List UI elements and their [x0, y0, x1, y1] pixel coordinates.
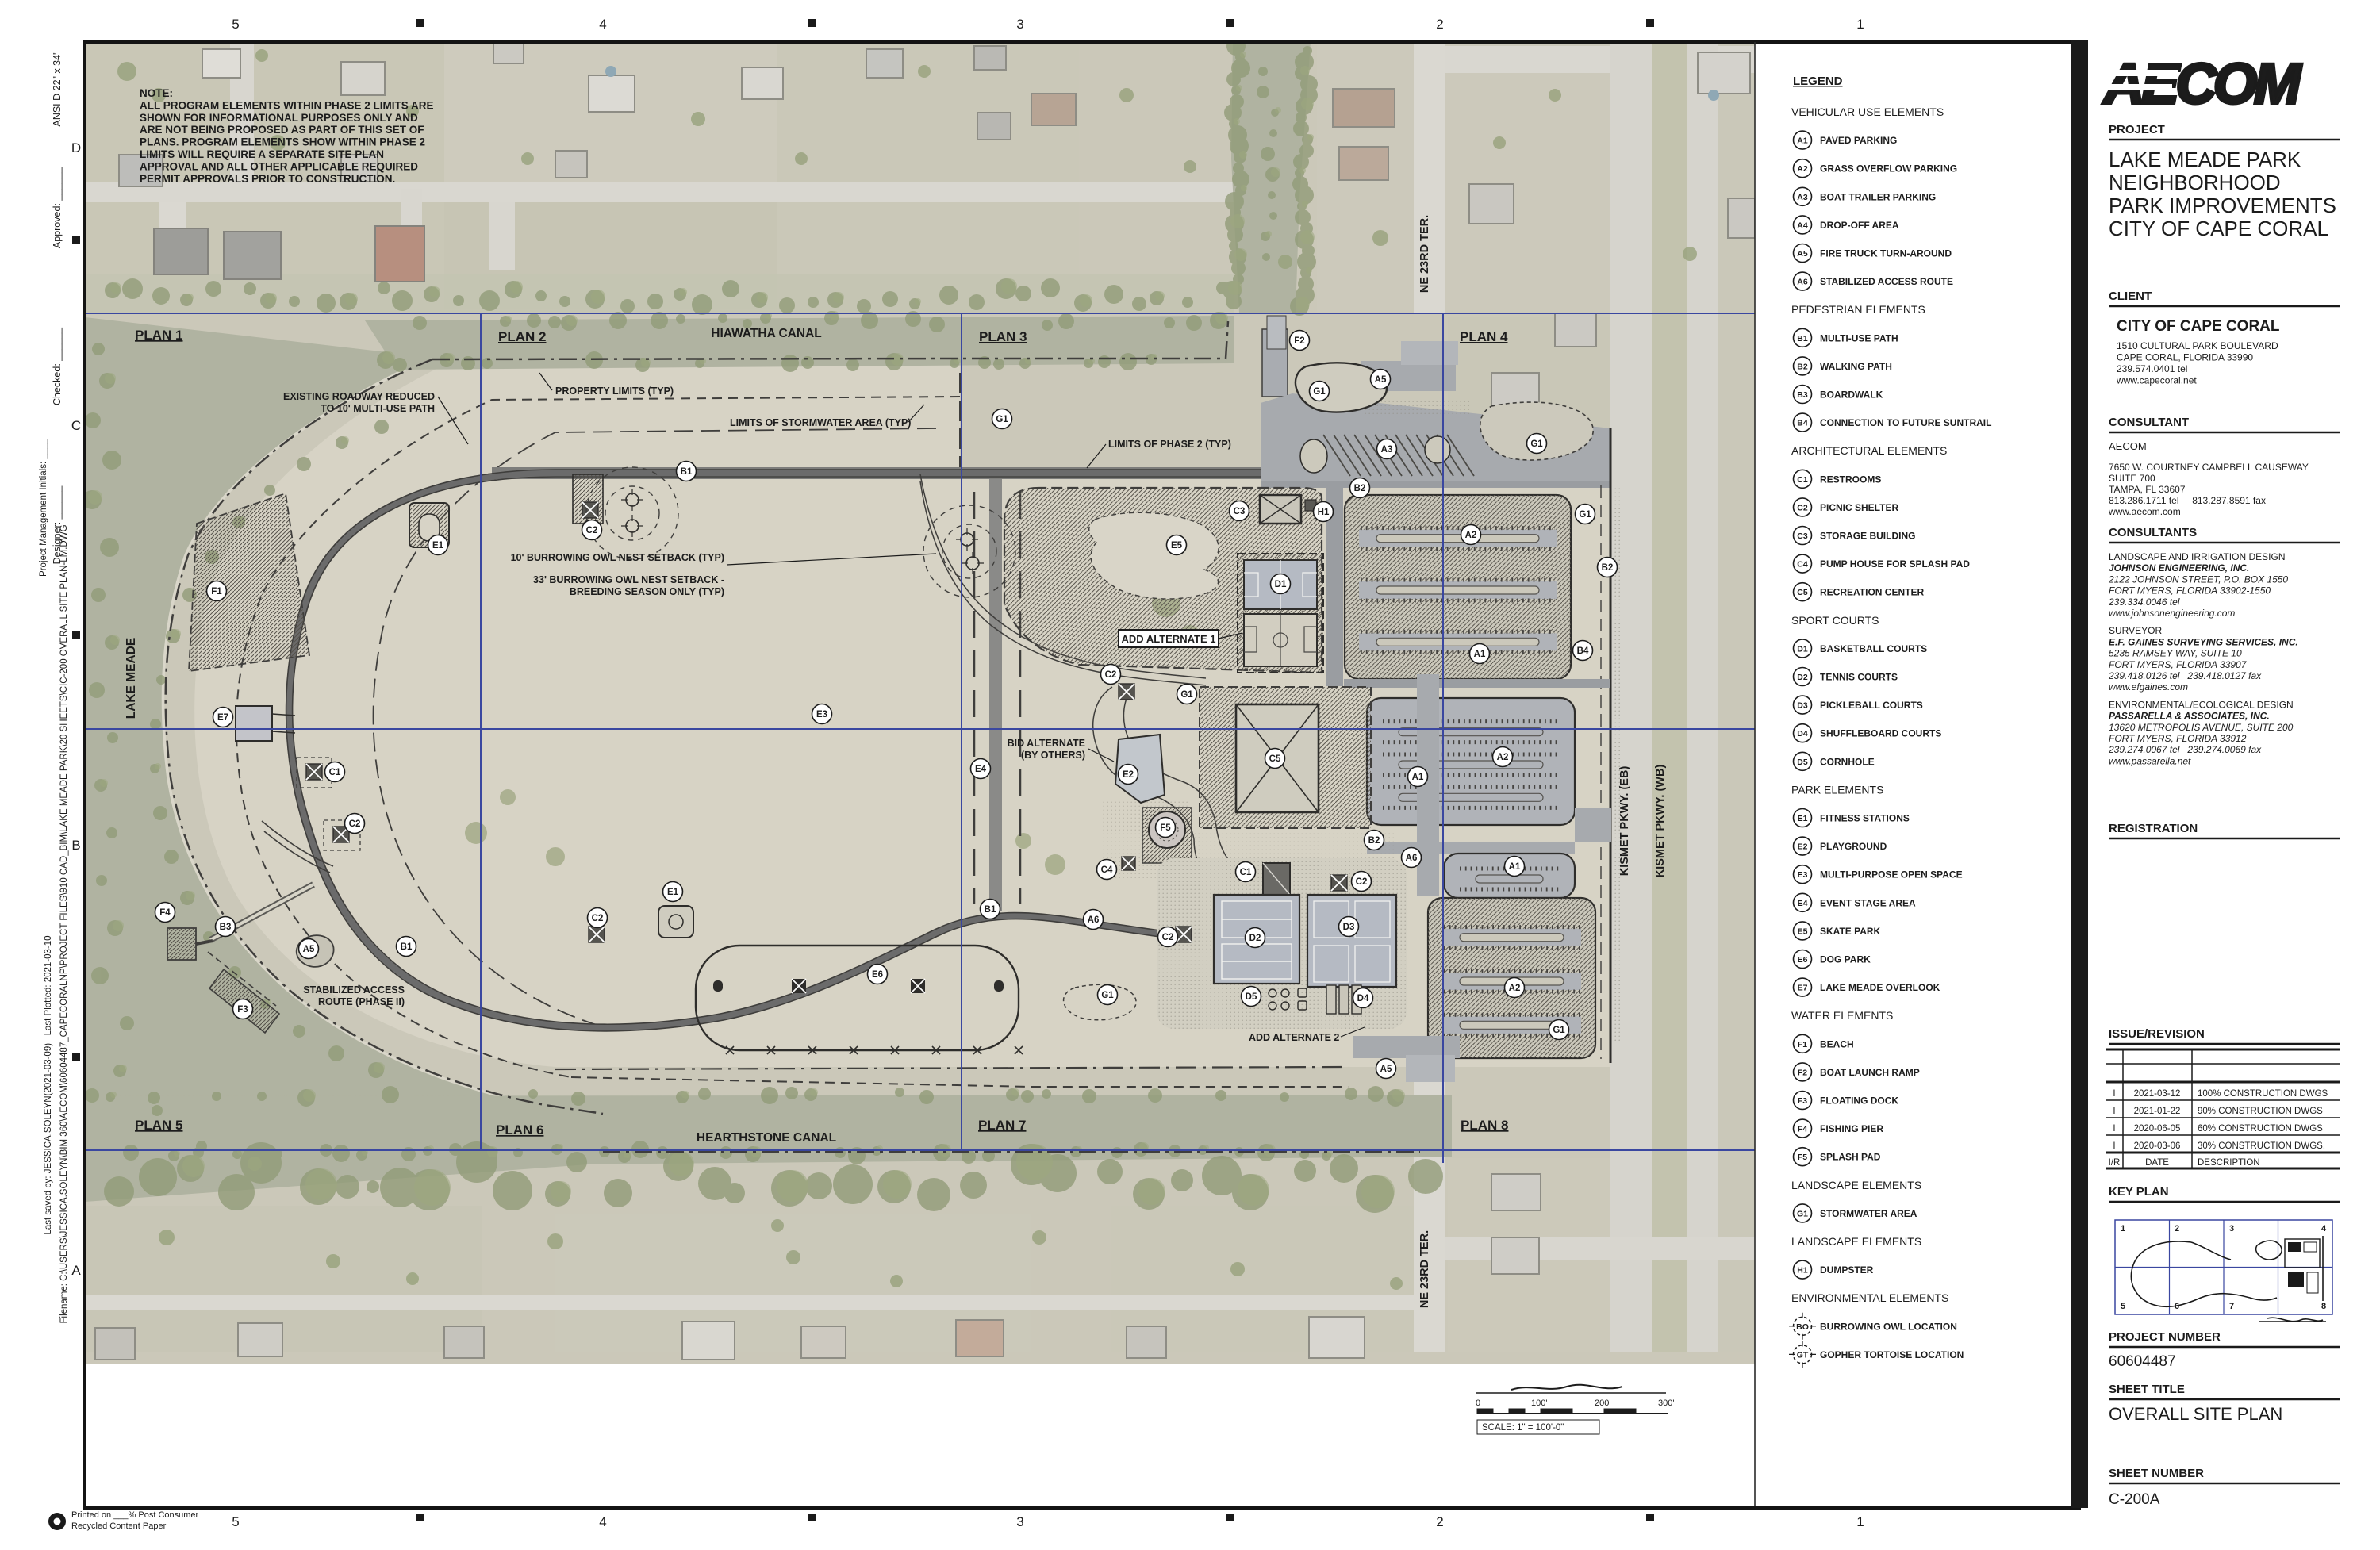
- svg-text:www.capecoral.net: www.capecoral.net: [2116, 375, 2197, 386]
- svg-text:E.F. GAINES SURVEYING SERVICES: E.F. GAINES SURVEYING SERVICES, INC.: [2109, 636, 2298, 647]
- svg-text:PROJECT NUMBER: PROJECT NUMBER: [2109, 1330, 2221, 1344]
- svg-text:100': 100': [1531, 1398, 1547, 1408]
- svg-text:Filename: C:\USERS\JESSICA.SOL: Filename: C:\USERS\JESSICA.SOLEYN\BIM 36…: [59, 524, 69, 1323]
- svg-text:SHEET NUMBER: SHEET NUMBER: [2109, 1467, 2204, 1480]
- svg-text:www.passarella.net: www.passarella.net: [2109, 755, 2191, 766]
- svg-text:CONNECTION TO FUTURE SUNTRAIL: CONNECTION TO FUTURE SUNTRAIL: [1820, 417, 1991, 428]
- svg-text:200': 200': [1595, 1398, 1610, 1408]
- svg-text:G1: G1: [1101, 991, 1114, 1000]
- svg-text:BASKETBALL COURTS: BASKETBALL COURTS: [1820, 643, 1927, 654]
- svg-text:2: 2: [2175, 1224, 2179, 1233]
- svg-text:5: 5: [232, 17, 239, 32]
- svg-text:GRASS OVERFLOW PARKING: GRASS OVERFLOW PARKING: [1820, 163, 1957, 175]
- svg-text:LIMITS OF STORMWATER AREA (TYP: LIMITS OF STORMWATER AREA (TYP): [730, 417, 911, 428]
- svg-text:E5: E5: [1171, 541, 1183, 551]
- svg-text:E7: E7: [1798, 984, 1808, 993]
- svg-text:F5: F5: [1798, 1153, 1807, 1162]
- svg-text:60% CONSTRUCTION DWGS: 60% CONSTRUCTION DWGS: [2198, 1124, 2323, 1134]
- svg-text:GOPHER TORTOISE LOCATION: GOPHER TORTOISE LOCATION: [1820, 1349, 1963, 1360]
- svg-text:A6: A6: [1406, 854, 1418, 863]
- svg-text:300': 300': [1658, 1398, 1674, 1408]
- svg-text:I/R: I/R: [2109, 1158, 2121, 1168]
- svg-text:3: 3: [2229, 1224, 2234, 1233]
- svg-text:I: I: [2113, 1141, 2115, 1151]
- svg-text:D4: D4: [1357, 994, 1369, 1003]
- svg-text:C4: C4: [1101, 865, 1113, 875]
- svg-text:1: 1: [1856, 17, 1864, 32]
- svg-text:C2: C2: [586, 526, 598, 535]
- svg-text:BID ALTERNATE: BID ALTERNATE: [1008, 738, 1085, 749]
- svg-text:2122 JOHNSON STREET, P.O. BOX: 2122 JOHNSON STREET, P.O. BOX 1550: [2108, 574, 2288, 585]
- svg-text:SCALE: 1" = 100'-0": SCALE: 1" = 100'-0": [1482, 1423, 1564, 1433]
- svg-text:CITY OF CAPE CORAL: CITY OF CAPE CORAL: [2109, 217, 2328, 240]
- svg-text:AECOM: AECOM: [2109, 440, 2147, 452]
- svg-text:3: 3: [1016, 17, 1023, 32]
- svg-text:EXISTING ROADWAY REDUCED: EXISTING ROADWAY REDUCED: [283, 391, 435, 402]
- svg-text:LAKE MEADE PARK: LAKE MEADE PARK: [2109, 148, 2301, 171]
- svg-text:TAMPA, FL 33607: TAMPA, FL 33607: [2109, 484, 2186, 495]
- svg-text:13620 METROPOLIS AVENUE, SUITE: 13620 METROPOLIS AVENUE, SUITE 200: [2109, 722, 2294, 733]
- svg-text:B2: B2: [1797, 362, 1808, 371]
- svg-text:APPROVAL AND ALL OTHER APPLICA: APPROVAL AND ALL OTHER APPLICABLE REQUIR…: [140, 160, 418, 172]
- svg-text:B1: B1: [681, 467, 693, 477]
- svg-text:2021-01-22: 2021-01-22: [2134, 1107, 2181, 1116]
- svg-text:PAVED PARKING: PAVED PARKING: [1820, 135, 1897, 146]
- svg-text:LIMITS WILL REQUIRE A SEPARATE: LIMITS WILL REQUIRE A SEPARATE SITE PLAN: [140, 148, 384, 160]
- svg-text:A6: A6: [1797, 278, 1808, 287]
- svg-text:F1: F1: [1798, 1040, 1807, 1049]
- svg-text:ENVIRONMENTAL/ECOLOGICAL DESIG: ENVIRONMENTAL/ECOLOGICAL DESIGN: [2109, 699, 2294, 710]
- svg-text:A2: A2: [1497, 753, 1509, 762]
- svg-text:D2: D2: [1249, 934, 1261, 943]
- svg-text:A1: A1: [1797, 136, 1808, 146]
- svg-text:10' BURROWING OWL NEST SETBACK: 10' BURROWING OWL NEST SETBACK (TYP): [511, 552, 724, 563]
- svg-text:A3: A3: [1381, 445, 1393, 455]
- svg-text:LAKE MEADE: LAKE MEADE: [125, 638, 138, 719]
- svg-text:PICKLEBALL COURTS: PICKLEBALL COURTS: [1820, 700, 1923, 711]
- svg-text:LAKE MEADE OVERLOOK: LAKE MEADE OVERLOOK: [1820, 982, 1940, 993]
- svg-text:HIAWATHA CANAL: HIAWATHA CANAL: [711, 327, 822, 340]
- svg-text:BOAT LAUNCH RAMP: BOAT LAUNCH RAMP: [1820, 1067, 1920, 1078]
- svg-text:D3: D3: [1797, 701, 1808, 711]
- svg-text:I: I: [2113, 1124, 2115, 1134]
- svg-text:7650 W. COURTNEY CAMPBELL CAUS: 7650 W. COURTNEY CAMPBELL CAUSEWAY: [2109, 462, 2309, 473]
- svg-text:SHUFFLEBOARD COURTS: SHUFFLEBOARD COURTS: [1820, 728, 1941, 739]
- svg-text:30% CONSTRUCTION DWGS.: 30% CONSTRUCTION DWGS.: [2198, 1141, 2325, 1151]
- svg-text:BOAT TRAILER PARKING: BOAT TRAILER PARKING: [1820, 191, 1936, 202]
- svg-text:A4: A4: [1797, 221, 1808, 230]
- svg-text:PASSARELLA & ASSOCIATES, INC.: PASSARELLA & ASSOCIATES, INC.: [2109, 711, 2270, 722]
- svg-text:F5: F5: [1160, 823, 1171, 833]
- svg-text:B3: B3: [1797, 390, 1808, 400]
- svg-text:C-200A: C-200A: [2109, 1491, 2160, 1508]
- svg-text:ENVIRONMENTAL ELEMENTS: ENVIRONMENTAL ELEMENTS: [1791, 1291, 1948, 1304]
- svg-text:2: 2: [1436, 1514, 1443, 1529]
- svg-text:PROJECT: PROJECT: [2109, 123, 2165, 136]
- svg-text:C2: C2: [1162, 933, 1174, 942]
- svg-text:CLIENT: CLIENT: [2109, 290, 2152, 303]
- svg-text:B4: B4: [1797, 419, 1808, 428]
- svg-text:C2: C2: [1356, 877, 1368, 887]
- svg-text:NE 23RD TER.: NE 23RD TER.: [1418, 215, 1431, 293]
- svg-text:BOARDWALK: BOARDWALK: [1820, 389, 1883, 401]
- svg-text:E6: E6: [872, 970, 883, 980]
- svg-text:I: I: [2113, 1089, 2115, 1099]
- svg-text:B3: B3: [220, 923, 232, 932]
- svg-text:1: 1: [2121, 1224, 2125, 1233]
- svg-text:REGISTRATION: REGISTRATION: [2109, 822, 2198, 835]
- svg-text:B2: B2: [1602, 563, 1614, 573]
- svg-text:239.334.0046 tel: 239.334.0046 tel: [2108, 597, 2180, 608]
- svg-text:RESTROOMS: RESTROOMS: [1820, 474, 1881, 485]
- svg-text:239.274.0067 tel 239.274.006: 239.274.0067 tel 239.274.0069 fax: [2108, 744, 2262, 755]
- svg-text:www.aecom.com: www.aecom.com: [2108, 506, 2181, 517]
- svg-text:DESCRIPTION: DESCRIPTION: [2198, 1158, 2260, 1168]
- svg-text:5: 5: [2121, 1302, 2125, 1311]
- svg-text:A6: A6: [1088, 915, 1100, 925]
- svg-text:(BY OTHERS): (BY OTHERS): [1021, 750, 1085, 761]
- svg-text:E7: E7: [217, 713, 228, 723]
- svg-text:I: I: [2113, 1107, 2115, 1116]
- svg-text:STABILIZED ACCESS ROUTE: STABILIZED ACCESS ROUTE: [1820, 276, 1953, 287]
- svg-text:C5: C5: [1269, 754, 1281, 764]
- svg-text:STORMWATER AREA: STORMWATER AREA: [1820, 1208, 1917, 1219]
- svg-text:A: A: [71, 1263, 81, 1278]
- svg-text:H1: H1: [1318, 508, 1330, 517]
- svg-text:Printed on ___% Post Consumer: Printed on ___% Post Consumer: [71, 1510, 199, 1520]
- svg-text:G1: G1: [1797, 1209, 1808, 1218]
- svg-text:Checked: ______: Checked: ______: [52, 327, 63, 405]
- svg-text:PLAN 6: PLAN 6: [496, 1122, 543, 1138]
- svg-text:A5: A5: [303, 945, 315, 954]
- svg-text:RECREATION CENTER: RECREATION CENTER: [1820, 587, 1924, 598]
- svg-text:CORNHOLE: CORNHOLE: [1820, 756, 1875, 767]
- svg-text:NOTE:: NOTE:: [140, 87, 173, 99]
- svg-text:FISHING PIER: FISHING PIER: [1820, 1123, 1883, 1134]
- svg-text:FORT MYERS, FLORIDA 33902-1550: FORT MYERS, FLORIDA 33902-1550: [2109, 585, 2271, 597]
- svg-text:C2: C2: [1797, 503, 1808, 512]
- svg-text:MULTI-PURPOSE OPEN SPACE: MULTI-PURPOSE OPEN SPACE: [1820, 869, 1963, 881]
- svg-text:B2: B2: [1354, 484, 1366, 493]
- svg-text:A3: A3: [1797, 193, 1808, 202]
- svg-text:A5: A5: [1375, 375, 1387, 385]
- svg-text:C2: C2: [1105, 670, 1117, 680]
- svg-text:VEHICULAR USE ELEMENTS: VEHICULAR USE ELEMENTS: [1791, 106, 1944, 118]
- svg-text:F3: F3: [237, 1005, 248, 1015]
- svg-text:E6: E6: [1798, 955, 1808, 965]
- svg-text:PROPERTY LIMITS (TYP): PROPERTY LIMITS (TYP): [555, 386, 674, 397]
- svg-text:SURVEYOR: SURVEYOR: [2109, 625, 2162, 636]
- svg-text:C2: C2: [592, 914, 604, 923]
- svg-text:CONSULTANTS: CONSULTANTS: [2109, 526, 2197, 539]
- svg-text:C1: C1: [1797, 475, 1808, 485]
- svg-text:ISSUE/REVISION: ISSUE/REVISION: [2109, 1027, 2205, 1041]
- svg-text:D: D: [71, 140, 81, 155]
- svg-text:Project Management Initials: _: Project Management Initials: ____: [39, 438, 48, 576]
- svg-text:F1: F1: [211, 587, 222, 597]
- svg-text:TENNIS COURTS: TENNIS COURTS: [1820, 672, 1898, 683]
- svg-text:60604487: 60604487: [2109, 1353, 2176, 1370]
- svg-text:A1: A1: [1474, 650, 1486, 659]
- svg-text:FITNESS STATIONS: FITNESS STATIONS: [1820, 813, 1910, 824]
- svg-text:OVERALL SITE PLAN: OVERALL SITE PLAN: [2109, 1404, 2282, 1424]
- svg-text:G1: G1: [1553, 1026, 1565, 1035]
- svg-text:D2: D2: [1797, 673, 1808, 682]
- svg-text:BURROWING OWL LOCATION: BURROWING OWL LOCATION: [1820, 1321, 1957, 1332]
- svg-text:LANDSCAPE AND IRRIGATION DESIG: LANDSCAPE AND IRRIGATION DESIGN: [2109, 551, 2286, 562]
- svg-text:DROP-OFF AREA: DROP-OFF AREA: [1820, 220, 1899, 231]
- svg-text:SUITE 700: SUITE 700: [2109, 473, 2155, 484]
- svg-text:ADD ALTERNATE 2: ADD ALTERNATE 2: [1249, 1032, 1339, 1043]
- svg-text:D4: D4: [1797, 729, 1808, 739]
- svg-text:C2: C2: [349, 819, 361, 829]
- svg-text:G1: G1: [1579, 510, 1591, 520]
- svg-text:WATER ELEMENTS: WATER ELEMENTS: [1791, 1009, 1893, 1022]
- svg-text:PLAN 1: PLAN 1: [135, 328, 182, 343]
- svg-text:PLAYGROUND: PLAYGROUND: [1820, 841, 1887, 852]
- svg-text:PLAN 7: PLAN 7: [978, 1118, 1026, 1133]
- svg-text:CAPE CORAL, FLORIDA 33990: CAPE CORAL, FLORIDA 33990: [2117, 352, 2253, 363]
- svg-text:7: 7: [2229, 1302, 2234, 1311]
- svg-text:E4: E4: [975, 765, 987, 774]
- svg-text:4: 4: [2321, 1224, 2327, 1233]
- svg-text:PLAN 2: PLAN 2: [498, 329, 546, 344]
- svg-text:C3: C3: [1234, 507, 1246, 516]
- svg-text:Approved: ______: Approved: ______: [52, 167, 63, 248]
- svg-text:239.418.0126 tel 239.418.012: 239.418.0126 tel 239.418.0127 fax: [2108, 670, 2262, 681]
- svg-text:4: 4: [599, 1514, 606, 1529]
- svg-text:0: 0: [1476, 1398, 1480, 1408]
- svg-text:LEGEND: LEGEND: [1793, 75, 1843, 88]
- svg-text:KISMET PKWY. (WB): KISMET PKWY. (WB): [1654, 765, 1667, 878]
- svg-text:DUMPSTER: DUMPSTER: [1820, 1264, 1874, 1276]
- svg-text:FLOATING DOCK: FLOATING DOCK: [1820, 1095, 1898, 1107]
- svg-text:A1: A1: [1509, 862, 1521, 872]
- svg-text:FIRE TRUCK TURN-AROUND: FIRE TRUCK TURN-AROUND: [1820, 248, 1952, 259]
- svg-text:3: 3: [1016, 1514, 1023, 1529]
- svg-text:FORT MYERS, FLORIDA 33912: FORT MYERS, FLORIDA 33912: [2109, 733, 2247, 744]
- svg-text:PLAN 3: PLAN 3: [979, 329, 1027, 344]
- svg-text:B4: B4: [1577, 646, 1589, 656]
- svg-text:2: 2: [1436, 17, 1443, 32]
- svg-text:G1: G1: [996, 415, 1008, 424]
- svg-text:E3: E3: [816, 710, 827, 719]
- svg-text:ROUTE (PHASE II): ROUTE (PHASE II): [318, 996, 405, 1007]
- svg-text:BO: BO: [1796, 1322, 1809, 1332]
- svg-text:PLAN 4: PLAN 4: [1460, 329, 1508, 344]
- svg-text:Last saved by: JESSICA.SOLEYN(: Last saved by: JESSICA.SOLEYN(2021-03-09…: [44, 935, 53, 1234]
- svg-text:C: C: [71, 418, 81, 433]
- svg-text:A2: A2: [1465, 531, 1477, 540]
- svg-text:E4: E4: [1798, 899, 1808, 908]
- svg-text:DATE: DATE: [2145, 1158, 2169, 1168]
- svg-text:E1: E1: [667, 888, 679, 897]
- svg-text:EVENT STAGE AREA: EVENT STAGE AREA: [1820, 897, 1916, 908]
- svg-text:PLAN 5: PLAN 5: [135, 1118, 182, 1133]
- svg-text:Recycled Content Paper: Recycled Content Paper: [71, 1521, 167, 1531]
- svg-text:PICNIC SHELTER: PICNIC SHELTER: [1820, 502, 1898, 513]
- svg-text:E1: E1: [1798, 814, 1808, 823]
- svg-text:B2: B2: [1368, 836, 1380, 846]
- svg-text:B1: B1: [1797, 334, 1808, 343]
- svg-text:F2: F2: [1294, 336, 1304, 346]
- svg-text:B: B: [71, 838, 80, 853]
- svg-text:NE 23RD TER.: NE 23RD TER.: [1418, 1230, 1431, 1308]
- svg-text:F4: F4: [1798, 1125, 1807, 1134]
- svg-text:F2: F2: [1798, 1068, 1807, 1077]
- svg-text:2020-06-05: 2020-06-05: [2134, 1124, 2181, 1134]
- svg-text:NEIGHBORHOOD: NEIGHBORHOOD: [2109, 171, 2281, 194]
- svg-text:WALKING PATH: WALKING PATH: [1820, 361, 1892, 372]
- svg-text:E2: E2: [1123, 770, 1134, 780]
- svg-text:1: 1: [1856, 1514, 1864, 1529]
- svg-text:B1: B1: [985, 905, 996, 915]
- svg-text:4: 4: [599, 17, 606, 32]
- svg-text:SHEET TITLE: SHEET TITLE: [2109, 1383, 2185, 1396]
- svg-text:813.286.1711 tel 813.287.8: 813.286.1711 tel 813.287.8591 fax: [2109, 495, 2266, 506]
- svg-text:www.efgaines.com: www.efgaines.com: [2109, 681, 2188, 693]
- svg-text:100% CONSTRUCTION DWGS: 100% CONSTRUCTION DWGS: [2198, 1089, 2328, 1099]
- svg-text:A5: A5: [1380, 1065, 1392, 1074]
- svg-text:DOG PARK: DOG PARK: [1820, 954, 1871, 965]
- svg-text:KEY PLAN: KEY PLAN: [2109, 1185, 2169, 1199]
- svg-text:A1: A1: [1412, 773, 1424, 782]
- svg-text:LANDSCAPE ELEMENTS: LANDSCAPE ELEMENTS: [1791, 1235, 1921, 1248]
- svg-text:PARK ELEMENTS: PARK ELEMENTS: [1791, 783, 1883, 796]
- svg-text:ALL PROGRAM ELEMENTS WITHIN PH: ALL PROGRAM ELEMENTS WITHIN PHASE 2 LIMI…: [140, 99, 434, 111]
- svg-text:MULTI-USE PATH: MULTI-USE PATH: [1820, 332, 1898, 343]
- svg-text:E2: E2: [1798, 842, 1808, 852]
- svg-text:C3: C3: [1797, 531, 1808, 541]
- svg-text:5235 RAMSEY WAY, SUITE 10: 5235 RAMSEY WAY, SUITE 10: [2109, 648, 2242, 659]
- svg-text:JOHNSON ENGINEERING, INC.: JOHNSON ENGINEERING, INC.: [2109, 562, 2249, 574]
- svg-text:H1: H1: [1797, 1266, 1808, 1276]
- svg-text:ARCHITECTURAL ELEMENTS: ARCHITECTURAL ELEMENTS: [1791, 444, 1947, 457]
- svg-text:ARE NOT BEING PROPOSED AS PART: ARE NOT BEING PROPOSED AS PART OF THIS S…: [140, 124, 424, 136]
- svg-text:A2: A2: [1797, 164, 1808, 174]
- svg-text:PEDESTRIAN ELEMENTS: PEDESTRIAN ELEMENTS: [1791, 303, 1925, 316]
- svg-text:8: 8: [2321, 1302, 2326, 1311]
- svg-text:D1: D1: [1275, 580, 1287, 589]
- svg-text:FORT MYERS, FLORIDA 33907: FORT MYERS, FLORIDA 33907: [2109, 659, 2248, 670]
- svg-text:SKATE PARK: SKATE PARK: [1820, 926, 1881, 937]
- svg-text:ANSI D 22" x 34": ANSI D 22" x 34": [52, 51, 63, 126]
- svg-text:5: 5: [232, 1514, 239, 1529]
- svg-text:HEARTHSTONE CANAL: HEARTHSTONE CANAL: [697, 1131, 836, 1145]
- svg-text:PUMP HOUSE FOR SPLASH PAD: PUMP HOUSE FOR SPLASH PAD: [1820, 558, 1970, 570]
- svg-text:TO 10' MULTI-USE PATH: TO 10' MULTI-USE PATH: [321, 403, 435, 414]
- svg-text:90% CONSTRUCTION DWGS: 90% CONSTRUCTION DWGS: [2198, 1107, 2323, 1116]
- svg-text:PARK IMPROVEMENTS: PARK IMPROVEMENTS: [2109, 194, 2336, 217]
- svg-text:D5: D5: [1797, 758, 1808, 767]
- svg-text:F4: F4: [159, 908, 171, 918]
- svg-text:2020-03-06: 2020-03-06: [2134, 1141, 2181, 1151]
- svg-text:ADD ALTERNATE 1: ADD ALTERNATE 1: [1122, 633, 1216, 645]
- svg-text:KISMET PKWY. (EB): KISMET PKWY. (EB): [1618, 766, 1631, 877]
- svg-text:D3: D3: [1343, 923, 1355, 932]
- svg-text:C1: C1: [1240, 868, 1252, 877]
- svg-text:BREEDING SEASON ONLY (TYP): BREEDING SEASON ONLY (TYP): [570, 586, 724, 597]
- svg-text:33' BURROWING OWL NEST SETBACK: 33' BURROWING OWL NEST SETBACK -: [533, 574, 724, 585]
- svg-text:E1: E1: [432, 541, 444, 551]
- svg-text:SPORT COURTS: SPORT COURTS: [1791, 614, 1879, 627]
- svg-text:GT: GT: [1797, 1350, 1809, 1360]
- svg-text:G1: G1: [1313, 387, 1326, 397]
- svg-text:2021-03-12: 2021-03-12: [2134, 1089, 2181, 1099]
- svg-text:CONSULTANT: CONSULTANT: [2109, 416, 2189, 429]
- svg-text:E5: E5: [1798, 927, 1808, 936]
- svg-text:STORAGE BUILDING: STORAGE BUILDING: [1820, 531, 1915, 542]
- svg-text:G1: G1: [1180, 690, 1193, 700]
- svg-text:SPLASH PAD: SPLASH PAD: [1820, 1152, 1881, 1163]
- svg-text:D1: D1: [1797, 644, 1808, 654]
- svg-text:F3: F3: [1798, 1096, 1807, 1106]
- svg-text:PERMIT APPROVALS PRIOR TO CONS: PERMIT APPROVALS PRIOR TO CONSTRUCTION.: [140, 173, 395, 185]
- svg-text:LIMITS OF PHASE 2 (TYP): LIMITS OF PHASE 2 (TYP): [1108, 439, 1231, 450]
- svg-text:www.johnsonengineering.com: www.johnsonengineering.com: [2109, 608, 2235, 619]
- svg-text:239.574.0401 tel: 239.574.0401 tel: [2117, 363, 2187, 374]
- svg-text:PLANS. PROGRAM ELEMENTS SHOW W: PLANS. PROGRAM ELEMENTS SHOW WITHIN PHAS…: [140, 136, 425, 148]
- svg-text:G1: G1: [1530, 439, 1543, 449]
- svg-text:SHOWN FOR INFORMATIONAL PURPOS: SHOWN FOR INFORMATIONAL PURPOSES ONLY AN…: [140, 112, 418, 124]
- svg-text:CITY OF CAPE CORAL: CITY OF CAPE CORAL: [2117, 318, 2280, 335]
- svg-text:B1: B1: [401, 942, 413, 952]
- svg-text:STABILIZED ACCESS: STABILIZED ACCESS: [303, 984, 405, 996]
- svg-text:D5: D5: [1246, 992, 1257, 1002]
- svg-text:A5: A5: [1797, 249, 1808, 259]
- svg-text:PLAN 8: PLAN 8: [1461, 1118, 1508, 1133]
- svg-text:BEACH: BEACH: [1820, 1038, 1854, 1049]
- svg-text:LANDSCAPE ELEMENTS: LANDSCAPE ELEMENTS: [1791, 1179, 1921, 1191]
- svg-text:E3: E3: [1798, 870, 1808, 880]
- svg-text:A2: A2: [1509, 984, 1521, 993]
- svg-text:C1: C1: [329, 768, 341, 777]
- svg-text:C4: C4: [1797, 560, 1808, 570]
- svg-text:1510 CULTURAL PARK BOULEVARD: 1510 CULTURAL PARK BOULEVARD: [2117, 340, 2278, 351]
- svg-text:C5: C5: [1797, 588, 1808, 597]
